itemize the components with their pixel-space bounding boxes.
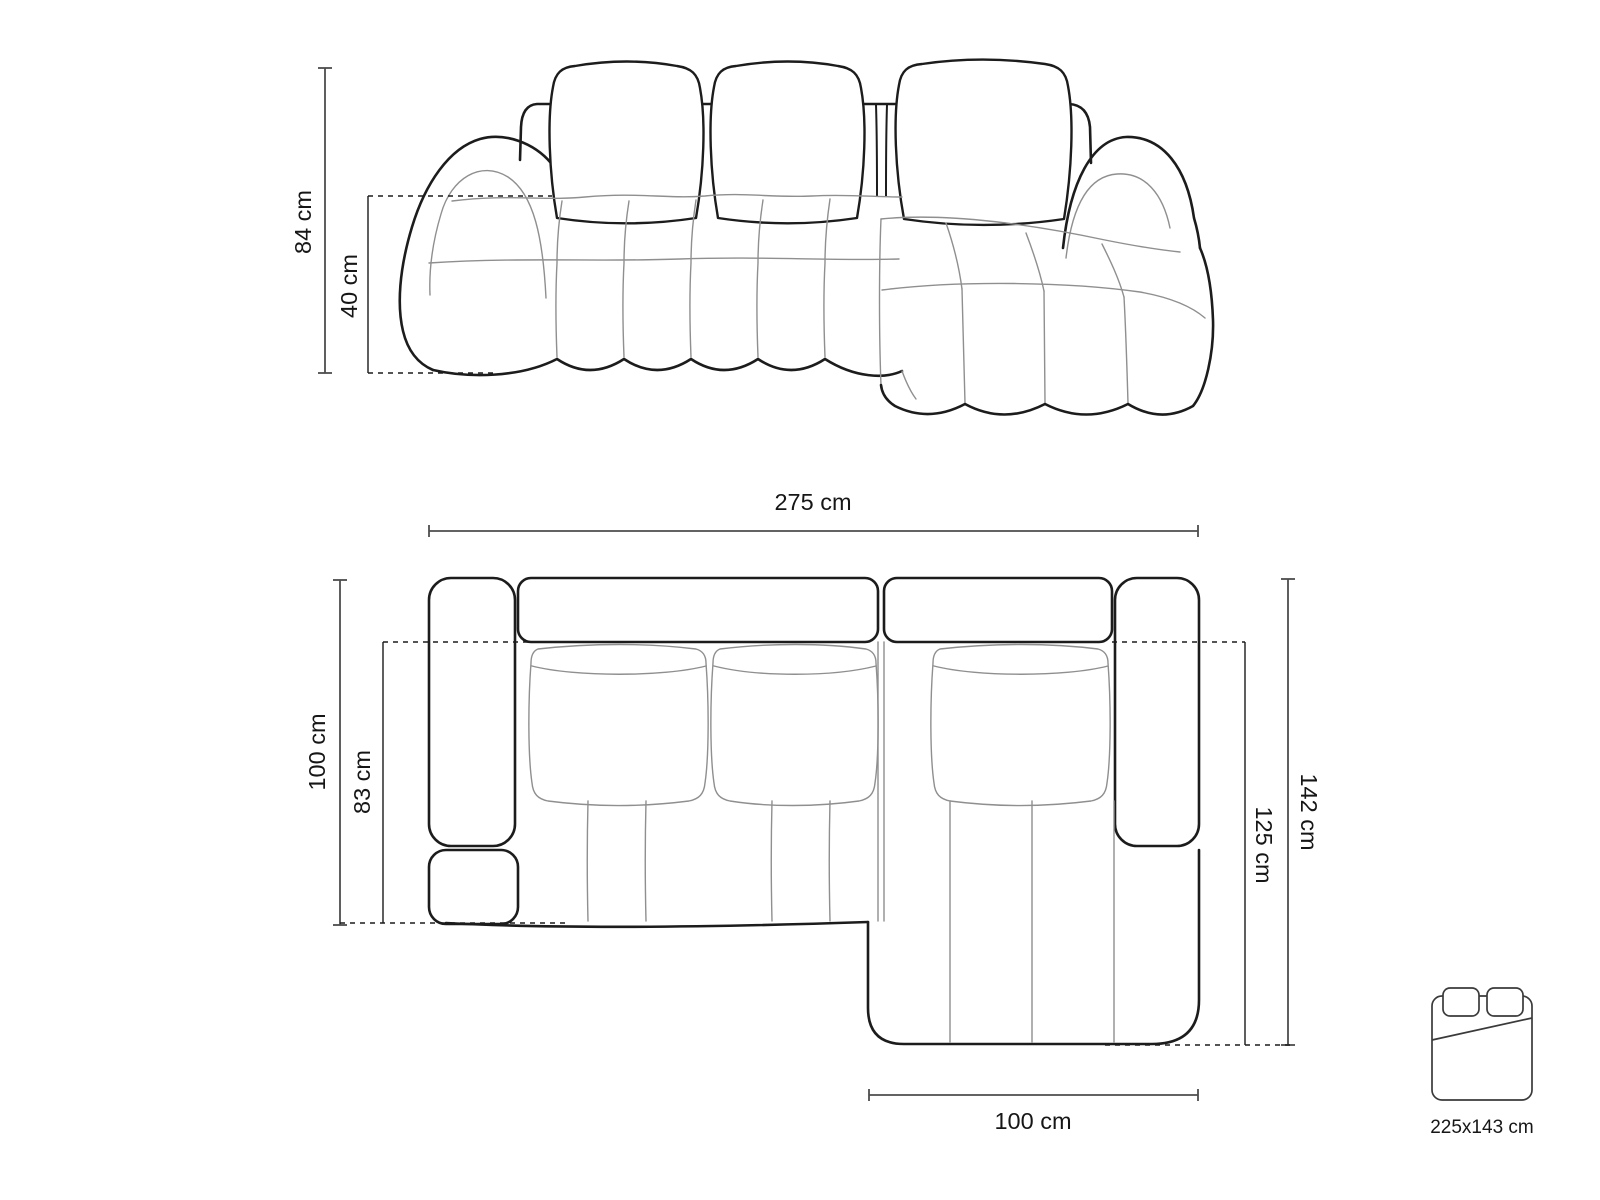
back-cushion-left bbox=[550, 62, 704, 224]
plan-seat-cushions bbox=[529, 642, 1114, 1042]
chaise-depth-dimensions: 142 cm 125 cm bbox=[1105, 579, 1322, 1045]
total-height-dim-label: 84 cm bbox=[290, 190, 316, 254]
bed-icon bbox=[1432, 988, 1532, 1100]
plan-right-armrest bbox=[1115, 578, 1199, 846]
total-width-dim-label: 275 cm bbox=[774, 489, 851, 515]
chaise-section-front bbox=[880, 217, 1214, 414]
diagram-canvas: 84 cm 40 cm 275 cm bbox=[0, 0, 1600, 1200]
sleeping-area-info: 225x143 cm bbox=[1430, 988, 1534, 1138]
plan-backrest-left bbox=[518, 578, 878, 642]
plan-left-front-module bbox=[429, 850, 518, 924]
plan-left-armrest bbox=[429, 578, 515, 846]
front-view-dimensions: 84 cm 40 cm bbox=[290, 68, 552, 373]
sleeping-area-label: 225x143 cm bbox=[1430, 1117, 1534, 1138]
plan-chaise-outline bbox=[868, 850, 1199, 1044]
chaise-total-depth-dim-label: 142 cm bbox=[1296, 773, 1322, 850]
seat-depth-dim-label: 83 cm bbox=[349, 750, 375, 814]
total-depth-dim-label: 100 cm bbox=[304, 713, 330, 790]
chaise-inner-depth-dim-label: 125 cm bbox=[1251, 806, 1277, 883]
left-armrest bbox=[400, 137, 551, 370]
right-armrest bbox=[1063, 137, 1200, 258]
back-cushion-right bbox=[896, 60, 1072, 226]
seat-section bbox=[429, 195, 916, 399]
depth-dimensions: 100 cm 83 cm bbox=[304, 580, 565, 925]
plan-backrest-right bbox=[884, 578, 1112, 642]
total-width-dimension: 275 cm bbox=[429, 489, 1198, 537]
top-plan-view: 275 cm bbox=[304, 489, 1322, 1134]
chaise-width-dim-label: 100 cm bbox=[994, 1108, 1071, 1134]
back-cushion-middle bbox=[711, 62, 865, 224]
front-elevation-view: 84 cm 40 cm bbox=[290, 60, 1213, 415]
seat-height-dim-label: 40 cm bbox=[336, 254, 362, 318]
chaise-width-dimension: 100 cm bbox=[869, 1089, 1198, 1134]
sofa-dimension-diagram: 84 cm 40 cm 275 cm bbox=[0, 0, 1600, 1200]
back-cushions bbox=[550, 60, 1072, 226]
